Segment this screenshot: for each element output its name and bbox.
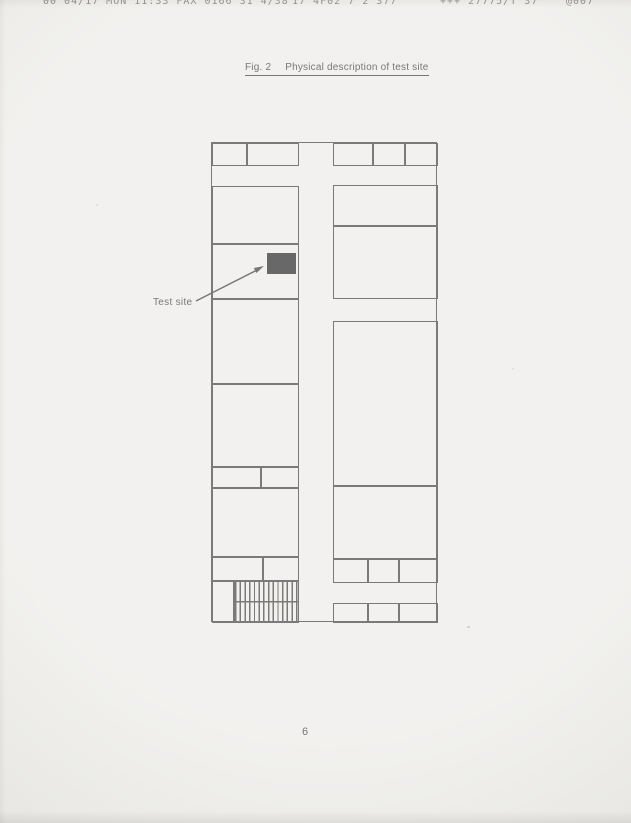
scanned-fax-page: { "page": { "number": "6", "colors": { "… [0, 0, 631, 823]
fax-header-segment: 00 04/17 MON 11:33 FAX 0166 31 4/38 [43, 0, 289, 9]
scan-speck [467, 626, 470, 628]
right-room-2 [333, 226, 438, 299]
stair-lobby [212, 581, 234, 623]
stairs [234, 581, 299, 623]
figure-title: Fig. 2Physical description of test site [245, 62, 429, 76]
figure-number-label: Fig. 2 [245, 62, 271, 73]
fax-header-segment: 17 4F02 7 2 377 [292, 0, 397, 9]
right-bottom-cell-2 [368, 603, 399, 623]
right-room-4 [333, 486, 438, 559]
left-annex-cell-2 [261, 467, 299, 488]
left-room-1 [212, 186, 299, 244]
floor-plan [211, 142, 437, 622]
right-annex-cell-1 [333, 559, 368, 583]
fax-header-page-stamp: @007 [566, 0, 594, 9]
figure-title-text: Physical description of test site [285, 62, 428, 73]
left-room-4 [212, 488, 299, 557]
left-room-3 [212, 384, 299, 467]
left-annex-cell-1 [212, 467, 261, 488]
right-room-3 [333, 321, 438, 486]
scan-speck [512, 368, 514, 370]
page-number: 6 [290, 726, 320, 738]
left-room-2 [212, 299, 299, 384]
right-room-1 [333, 185, 438, 226]
left-annex-cell-4 [263, 557, 299, 581]
scan-speck [96, 204, 98, 206]
top-right-cell-2 [373, 143, 405, 166]
top-left-cell-1 [212, 143, 247, 166]
right-annex-cell-3 [399, 559, 438, 583]
right-bottom-cell-1 [333, 603, 368, 623]
left-annex-cell-3 [212, 557, 263, 581]
right-annex-cell-2 [368, 559, 399, 583]
right-bottom-cell-3 [399, 603, 438, 623]
fax-header-segment: +++ 27775/T 37 [440, 0, 538, 9]
fax-header: 00 04/17 MON 11:33 FAX 0166 31 4/38 17 4… [0, 0, 631, 11]
top-right-cell-3 [405, 143, 438, 166]
top-right-cell-1 [333, 143, 373, 166]
test-site-arrow [150, 250, 275, 310]
top-left-cell-2 [247, 143, 299, 166]
